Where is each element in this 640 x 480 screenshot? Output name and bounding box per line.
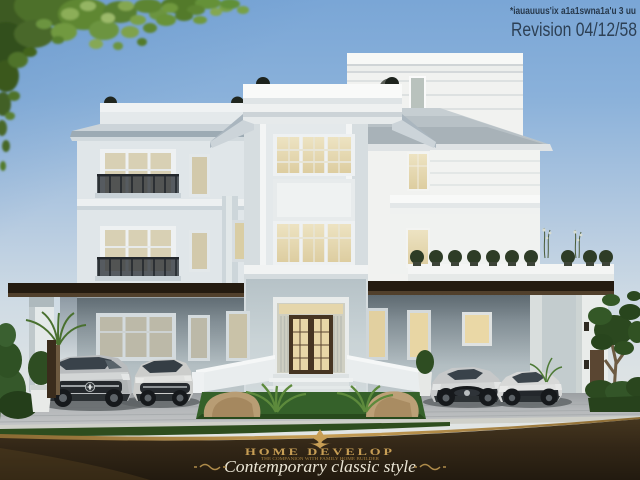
svg-text:Revision 04/12/58: Revision 04/12/58 <box>511 20 637 41</box>
svg-text:Contemporary classic style: Contemporary classic style <box>224 457 416 476</box>
svg-text:*iauauuus'ix a1a1swna1a'u 3 uu: *iauauuus'ix a1a1swna1a'u 3 uu <box>510 6 636 17</box>
